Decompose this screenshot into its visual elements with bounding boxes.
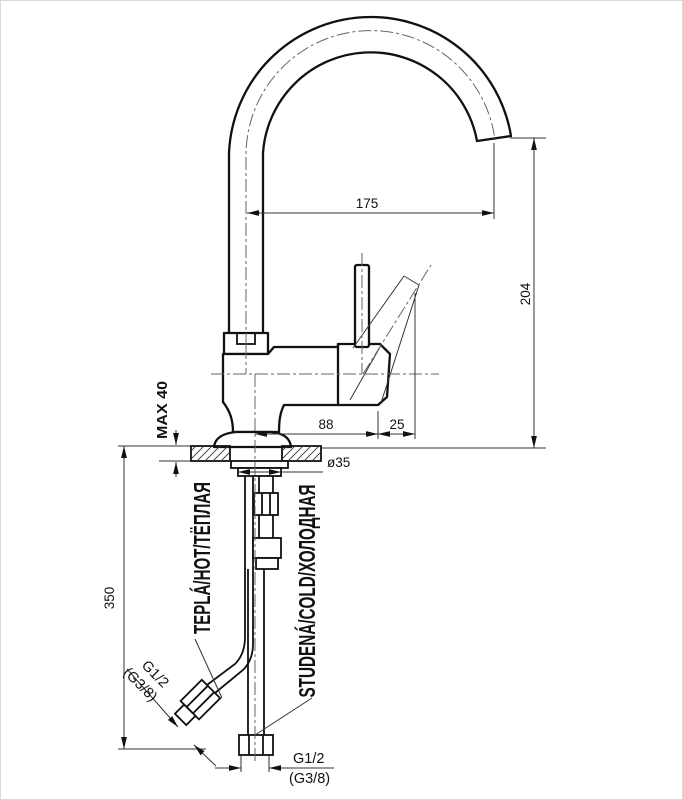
hose-coupling xyxy=(254,493,278,515)
drawing-sheet: 175 204 88 25 MAX 40 ø35 350 TEPLÁ/HO xyxy=(0,0,683,800)
cold-fitting-nut xyxy=(239,735,273,755)
dim-max40-value: MAX 40 xyxy=(154,381,171,439)
dim-175-value: 175 xyxy=(356,196,379,211)
straight-thread-alt-size: (G3/8) xyxy=(289,771,330,787)
faucet-technical-drawing: 175 204 88 25 MAX 40 ø35 350 TEPLÁ/HO xyxy=(1,1,683,800)
dim-25-value: 25 xyxy=(389,417,404,432)
mounting-shank xyxy=(231,461,288,476)
dim-350-value: 350 xyxy=(102,587,117,610)
dim-88-value: 88 xyxy=(318,417,333,432)
hose-block xyxy=(253,538,281,558)
cold-water-label: STUDENÁ/COLD/ХОЛОДНАЯ xyxy=(293,485,320,698)
dim-204-value: 204 xyxy=(518,282,533,305)
dim-hole-dia-value: ø35 xyxy=(327,455,350,470)
straight-thread-size: G1/2 xyxy=(293,751,324,767)
callout-angled-connection: G1/2 (G3/8) xyxy=(120,652,178,727)
dimension-spout-reach: 175 xyxy=(247,143,494,219)
faucet-body xyxy=(223,344,390,432)
hot-water-label: TEPLÁ/HOT/ТЁПЛАЯ xyxy=(188,482,215,634)
dimension-max-deck-thickness: MAX 40 xyxy=(141,381,191,477)
